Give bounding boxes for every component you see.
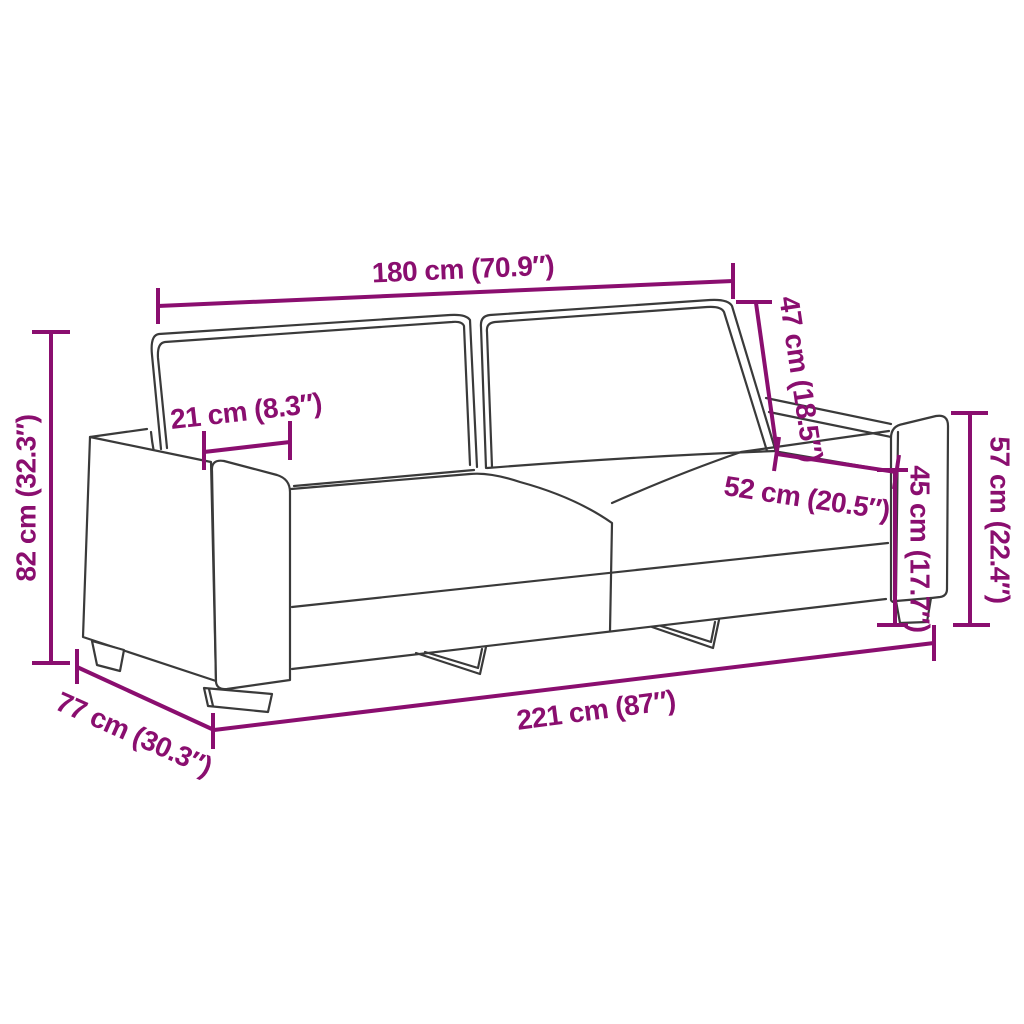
back-cushion-right-piping [487, 307, 767, 467]
dim-label-total-depth: 77 cm (30.3″) [51, 686, 216, 782]
back-cushion-left-bottom-edge [294, 470, 474, 486]
dimension-armrest-height: 57 cm (22.4″) [951, 413, 1016, 625]
left-arm-front-panel [212, 461, 290, 689]
backrest-rail-top-edge [766, 398, 891, 424]
dimension-back-width: 180 cm (70.9″) [158, 250, 733, 324]
back-cushion-right-outline [481, 300, 776, 468]
dimension-backrest-height: 47 cm (18.5″) [736, 294, 829, 464]
back-cushion-right-bottom-edge [487, 451, 776, 468]
left-arm-top-back-edge [90, 429, 147, 437]
dim-line [756, 303, 777, 452]
diagram-svg: 180 cm (70.9″) 21 cm (8.3″) 47 cm (18.5″… [0, 0, 1024, 1024]
dimension-seat-height: 45 cm (17.7″) [877, 465, 936, 632]
dim-label-back-width: 180 cm (70.9″) [371, 250, 554, 289]
dimension-total-width: 221 cm (87″) [213, 625, 934, 749]
dim-label-seat-depth: 52 cm (20.5″) [722, 470, 892, 526]
dim-line [204, 442, 290, 452]
seat-base-seam [292, 543, 888, 607]
dim-label-seat-height: 45 cm (17.7″) [905, 465, 936, 632]
dim-label-total-height: 82 cm (32.3″) [11, 414, 42, 581]
dim-label-armrest-height: 57 cm (22.4″) [985, 436, 1016, 603]
dim-label-armrest-width: 21 cm (8.3″) [169, 387, 324, 435]
sofa-dimension-diagram: 180 cm (70.9″) 21 cm (8.3″) 47 cm (18.5″… [0, 0, 1024, 1024]
front-inner-leg [204, 688, 272, 712]
seat-front-edge-and-middle-seam [291, 474, 612, 631]
dimension-total-height: 82 cm (32.3″) [11, 332, 71, 663]
dim-label-backrest-height: 47 cm (18.5″) [773, 294, 828, 464]
